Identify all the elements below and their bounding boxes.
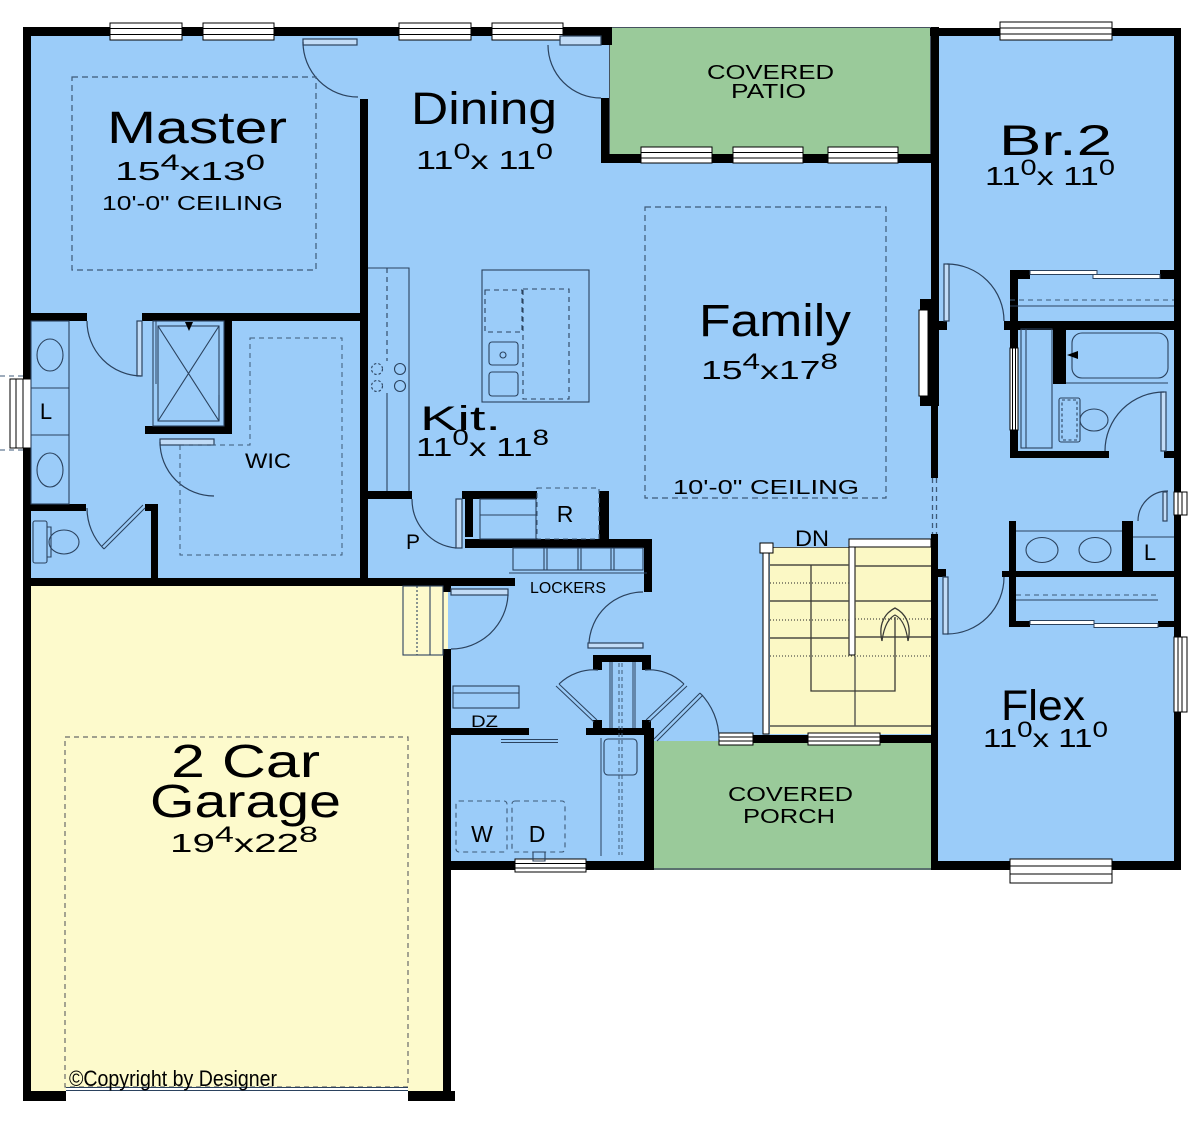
- svg-text:WIC: WIC: [245, 450, 291, 473]
- svg-text:L: L: [1144, 540, 1156, 565]
- svg-text:154x130: 154x130: [115, 150, 265, 186]
- svg-text:DZ: DZ: [471, 712, 498, 731]
- svg-text:LOCKERS: LOCKERS: [530, 580, 606, 597]
- svg-text:DN: DN: [795, 526, 829, 551]
- svg-text:R: R: [557, 501, 574, 527]
- svg-text:110x 110: 110x 110: [985, 155, 1115, 191]
- svg-text:154x178: 154x178: [701, 349, 838, 385]
- svg-text:Master: Master: [107, 102, 287, 153]
- svg-text:PORCH: PORCH: [743, 806, 835, 828]
- svg-text:Dining: Dining: [411, 83, 557, 134]
- svg-text:COVERED: COVERED: [728, 784, 853, 806]
- svg-text:PATIO: PATIO: [731, 81, 806, 103]
- svg-text:©Copyright by Designer: ©Copyright by Designer: [69, 1066, 277, 1091]
- svg-text:P: P: [406, 531, 420, 554]
- svg-text:110x 110: 110x 110: [416, 139, 553, 175]
- svg-text:W: W: [471, 821, 493, 847]
- svg-text:Br.2: Br.2: [999, 117, 1112, 165]
- svg-text:Family: Family: [699, 295, 852, 346]
- svg-text:110x 110: 110x 110: [983, 717, 1108, 753]
- svg-text:10'-0" CEILING: 10'-0" CEILING: [102, 193, 283, 215]
- svg-text:D: D: [529, 821, 546, 847]
- svg-text:194x228: 194x228: [170, 822, 318, 858]
- svg-text:L: L: [40, 399, 52, 424]
- svg-text:Garage: Garage: [150, 775, 341, 827]
- svg-text:10'-0" CEILING: 10'-0" CEILING: [673, 477, 859, 499]
